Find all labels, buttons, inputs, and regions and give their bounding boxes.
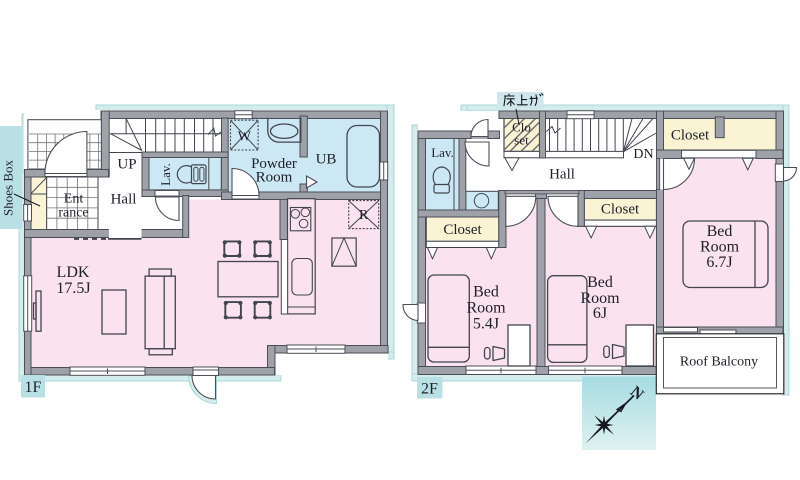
svg-text:Room: Room [466,300,506,317]
svg-text:Hall: Hall [549,167,575,183]
svg-text:LDK: LDK [57,264,90,281]
svg-text:6J: 6J [593,305,607,322]
svg-text:Hall: Hall [111,192,137,208]
svg-text:Room: Room [256,169,293,185]
svg-text:17.5J: 17.5J [56,280,90,297]
svg-text:W: W [238,130,252,145]
svg-text:Room: Room [700,239,740,256]
svg-text:R: R [359,208,369,223]
svg-text:Roof Balcony: Roof Balcony [680,355,758,370]
svg-text:5.4J: 5.4J [473,316,499,333]
svg-text:UB: UB [316,152,337,168]
svg-text:Lav.: Lav. [431,145,454,160]
svg-text:Closet: Closet [601,202,640,218]
svg-text:UP: UP [117,157,136,173]
svg-text:set: set [514,133,529,148]
svg-text:Closet: Closet [671,128,710,144]
svg-text:Bed: Bed [587,274,613,291]
svg-text:Shoes Box: Shoes Box [1,160,16,216]
svg-text:Bed: Bed [707,223,733,240]
svg-text:1F: 1F [25,379,42,396]
svg-text:6.7J: 6.7J [706,254,732,271]
svg-text:Ent: Ent [64,192,84,207]
svg-text:Lav.: Lav. [158,163,173,186]
svg-text:DN: DN [633,147,653,162]
svg-text:Closet: Closet [443,222,482,238]
svg-text:Bed: Bed [473,284,499,301]
svg-text:rance: rance [58,206,88,221]
svg-text:2F: 2F [421,381,438,398]
